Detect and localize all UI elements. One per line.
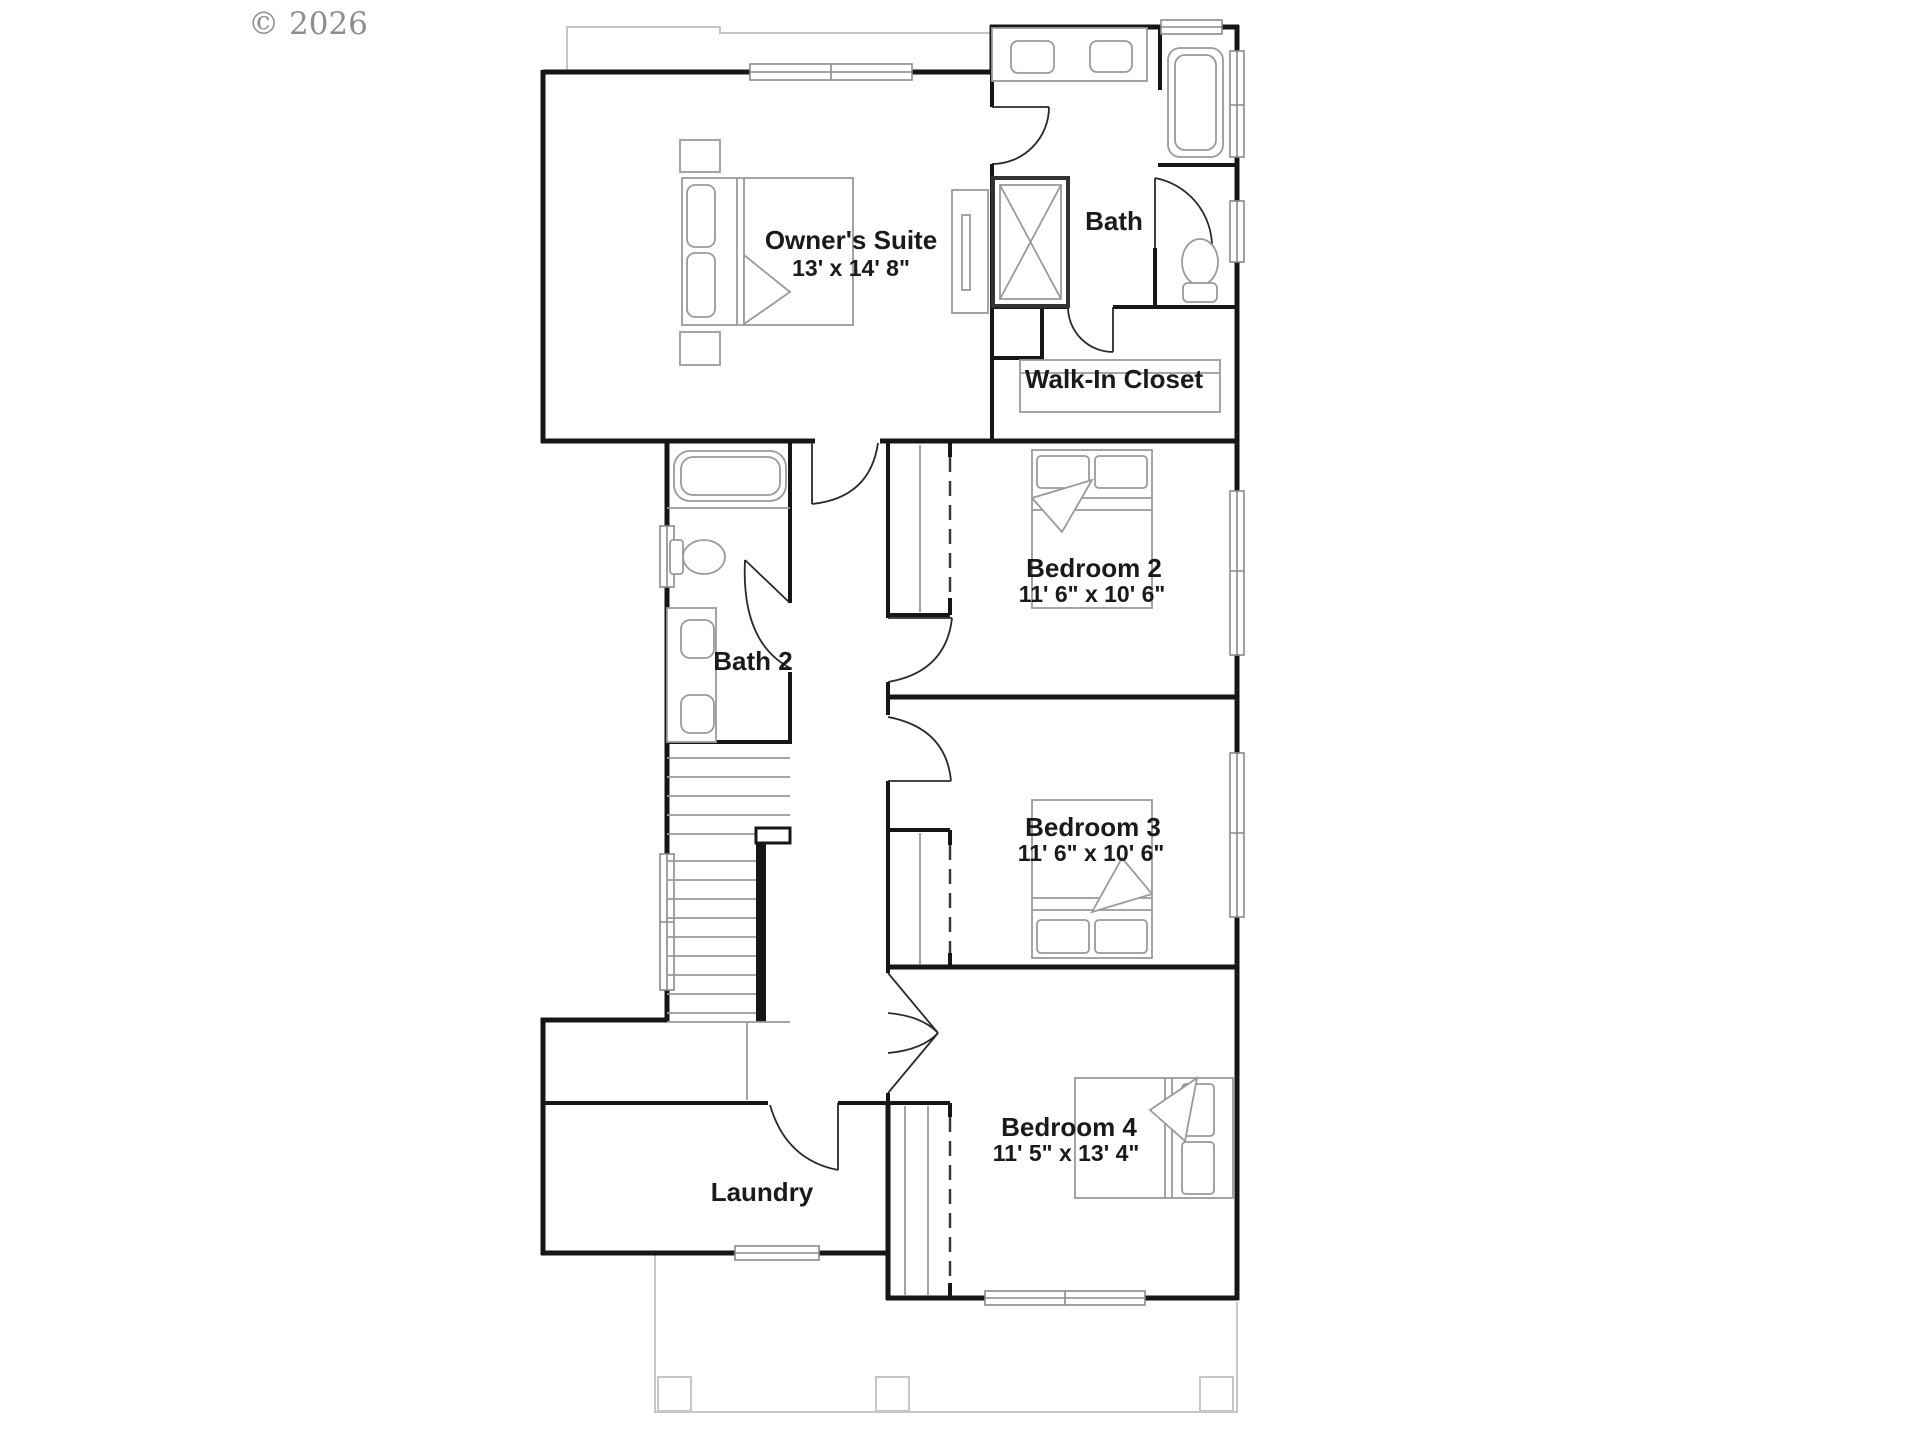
pillow-icon xyxy=(1037,920,1089,953)
floor-plan-page: © 2026 xyxy=(0,0,1920,1440)
stair-railing-icon xyxy=(756,843,766,1022)
floor-plan: © 2026 xyxy=(0,0,1920,1440)
toilet-icon xyxy=(1182,239,1218,302)
owners-suite-dims: 13' x 14' 8" xyxy=(792,255,910,281)
hallway-door xyxy=(812,442,878,504)
bedroom3-door xyxy=(888,717,951,781)
bath2-toilet-icon xyxy=(670,540,725,574)
sink-icon xyxy=(1090,41,1132,72)
nightstand-icon xyxy=(680,140,720,172)
laundry-window xyxy=(735,1246,819,1260)
suite-bath-door xyxy=(992,107,1049,164)
bath2-tub-icon xyxy=(667,451,790,508)
copyright-watermark: © 2026 xyxy=(248,6,368,42)
laundry-door xyxy=(770,1103,838,1170)
porch-post xyxy=(876,1377,909,1411)
laundry-label: Laundry xyxy=(711,1177,814,1207)
sink-icon xyxy=(681,695,714,733)
bedroom3-dims: 11' 6" x 10' 6" xyxy=(1018,840,1165,866)
stair-landing-icon xyxy=(756,828,790,843)
sink-icon xyxy=(1011,41,1054,73)
shower-icon xyxy=(993,178,1068,306)
nightstand-icon xyxy=(680,332,720,365)
bathtub-icon xyxy=(1168,48,1223,157)
sink-icon xyxy=(681,620,714,658)
walk-in-closet-label: Walk-In Closet xyxy=(1025,364,1204,394)
bedroom2-dims: 11' 6" x 10' 6" xyxy=(1019,581,1166,607)
bedroom2-window xyxy=(1230,491,1244,655)
pillow-icon xyxy=(1182,1142,1214,1194)
walk-in-closet-door xyxy=(1068,307,1113,352)
owners-suite-window xyxy=(750,64,912,80)
bedroom2-label: Bedroom 2 xyxy=(1026,553,1162,583)
tub-window xyxy=(1230,51,1244,157)
dresser-icon xyxy=(952,190,988,313)
bedroom3-window xyxy=(1230,753,1244,917)
room-labels: Owner's Suite 13' x 14' 8" Bath Walk-In … xyxy=(711,206,1204,1207)
closet-panels xyxy=(905,445,928,1295)
toilet-room-door xyxy=(1155,178,1212,248)
bedroom3-label: Bedroom 3 xyxy=(1025,812,1161,842)
toilet-window xyxy=(1230,201,1244,262)
bedroom4-double-door xyxy=(888,973,938,1093)
bath2-vanity-icon xyxy=(667,608,716,742)
pillow-icon xyxy=(1095,456,1147,488)
bedroom2-door xyxy=(888,618,952,682)
bath-top-window xyxy=(1161,20,1222,34)
bath-label: Bath xyxy=(1085,206,1143,236)
pillow-icon xyxy=(687,185,715,247)
pillow-icon xyxy=(1095,920,1147,953)
bedroom4-dims: 11' 5" x 13' 4" xyxy=(993,1140,1140,1166)
bedroom4-label: Bedroom 4 xyxy=(1001,1112,1137,1142)
porch-outline xyxy=(655,1255,1237,1412)
bath-vanity-icon xyxy=(992,28,1147,81)
stairs-icon xyxy=(667,758,790,1100)
bath2-label: Bath 2 xyxy=(713,646,792,676)
stairs-window xyxy=(660,854,674,990)
pillow-icon xyxy=(687,253,715,317)
porch-post xyxy=(1200,1377,1233,1411)
porch-post xyxy=(658,1377,691,1411)
bedroom4-window xyxy=(985,1291,1145,1305)
owners-suite-label: Owner's Suite xyxy=(765,225,937,255)
